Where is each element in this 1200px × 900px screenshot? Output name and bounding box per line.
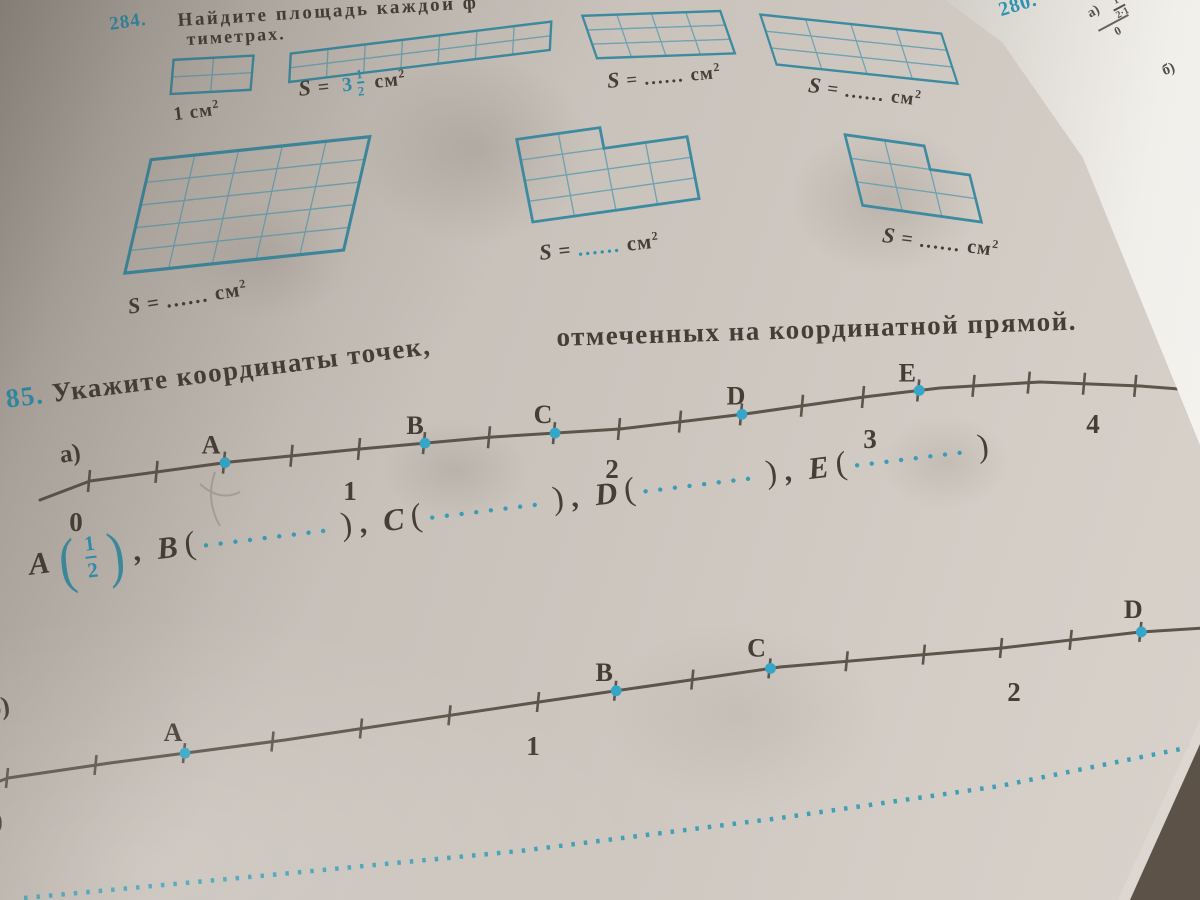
- point-dot-A-b: [180, 748, 191, 759]
- tick-mark-b: [1070, 630, 1072, 650]
- tick-mark-a: [1028, 372, 1030, 394]
- axis-number-b-2: 2: [1007, 677, 1021, 707]
- open-paren-icon: (: [182, 526, 197, 564]
- point-label-B-b: B: [596, 658, 613, 687]
- close-paren-icon: ): [339, 507, 354, 545]
- axis-number-a-4: 4: [1086, 409, 1100, 439]
- point-dot-C-a: [550, 428, 561, 439]
- facing-item-b: б): [1160, 60, 1178, 80]
- point-label-C-b: C: [747, 633, 766, 662]
- tick-mark-a: [291, 445, 293, 467]
- tick-mark-a: [862, 386, 864, 408]
- point-label-B-a: B: [406, 411, 423, 440]
- tick-mark-a: [88, 470, 90, 492]
- point-dot-D-b: [1136, 627, 1147, 638]
- close-paren-icon: ): [764, 454, 779, 492]
- tick-mark-a: [156, 461, 158, 483]
- point-dot-D-a: [737, 409, 748, 420]
- tick-mark-b: [360, 718, 362, 738]
- tick-mark-b: [95, 755, 97, 775]
- tick-mark-b: [272, 732, 274, 752]
- answer-point-b: B: [155, 529, 180, 567]
- close-paren-icon: ): [105, 530, 127, 581]
- fraction-one-half: 12: [81, 532, 101, 582]
- point-dot-B-b: [611, 685, 622, 696]
- point-label-A-b: A: [164, 718, 183, 747]
- tick-mark-b: [923, 645, 925, 665]
- axis-number-b-0: 0: [0, 808, 3, 838]
- facing-item-a: а): [1085, 3, 1103, 23]
- separator: ,: [782, 454, 794, 489]
- axis-number-b-1: 1: [526, 731, 540, 761]
- tick-mark-a: [358, 438, 360, 460]
- answer-blank-c: ........: [426, 482, 547, 527]
- point-dot-A-a: [220, 457, 231, 468]
- point-label-E-a: E: [899, 358, 916, 387]
- tick-mark-b: [537, 692, 539, 712]
- tick-mark-b: [1000, 638, 1002, 658]
- number-lines-layer: 01234ABCDE012ABCD: [0, 0, 1200, 900]
- tick-mark-b: [691, 670, 693, 690]
- tick-mark-a: [679, 411, 681, 433]
- open-paren-icon: (: [622, 472, 637, 510]
- point-label-C-a: C: [534, 400, 553, 429]
- separator: ,: [569, 480, 581, 515]
- open-paren-icon: (: [833, 446, 848, 484]
- facing-exercise-number: 280.: [996, 0, 1040, 22]
- separator: ,: [131, 534, 143, 569]
- separator: ,: [357, 506, 369, 541]
- textbook-photo: 284. Найдите площадь каждой ф тиметрах. …: [0, 0, 1200, 900]
- answer-point-a: A: [27, 544, 52, 582]
- point-label-A-a: A: [202, 431, 221, 460]
- answer-point-e: E: [806, 449, 831, 487]
- tick-mark-a: [488, 426, 490, 448]
- answer-blank-d: ........: [640, 456, 761, 501]
- close-paren-icon: ): [550, 481, 565, 519]
- tick-mark-b: [449, 705, 451, 725]
- dotted-answer-rule: [24, 744, 1200, 898]
- point-label-D-b: D: [1124, 595, 1143, 624]
- facing-zero: 0: [1098, 14, 1136, 46]
- tick-mark-a: [973, 375, 975, 397]
- point-label-D-a: D: [727, 381, 746, 410]
- tick-mark-b: [6, 768, 8, 788]
- tick-mark-a: [1083, 373, 1085, 395]
- open-paren-icon: (: [409, 498, 424, 536]
- tick-mark-a: [801, 395, 803, 417]
- tick-mark-a: [618, 418, 620, 440]
- answer-point-d: D: [593, 475, 620, 513]
- answer-point-c: C: [381, 501, 406, 539]
- answer-blank-e: ........: [851, 430, 972, 475]
- open-paren-icon: (: [56, 536, 78, 587]
- tick-mark-b: [846, 651, 848, 671]
- tick-mark-a: [1134, 375, 1136, 397]
- point-dot-C-b: [765, 663, 776, 674]
